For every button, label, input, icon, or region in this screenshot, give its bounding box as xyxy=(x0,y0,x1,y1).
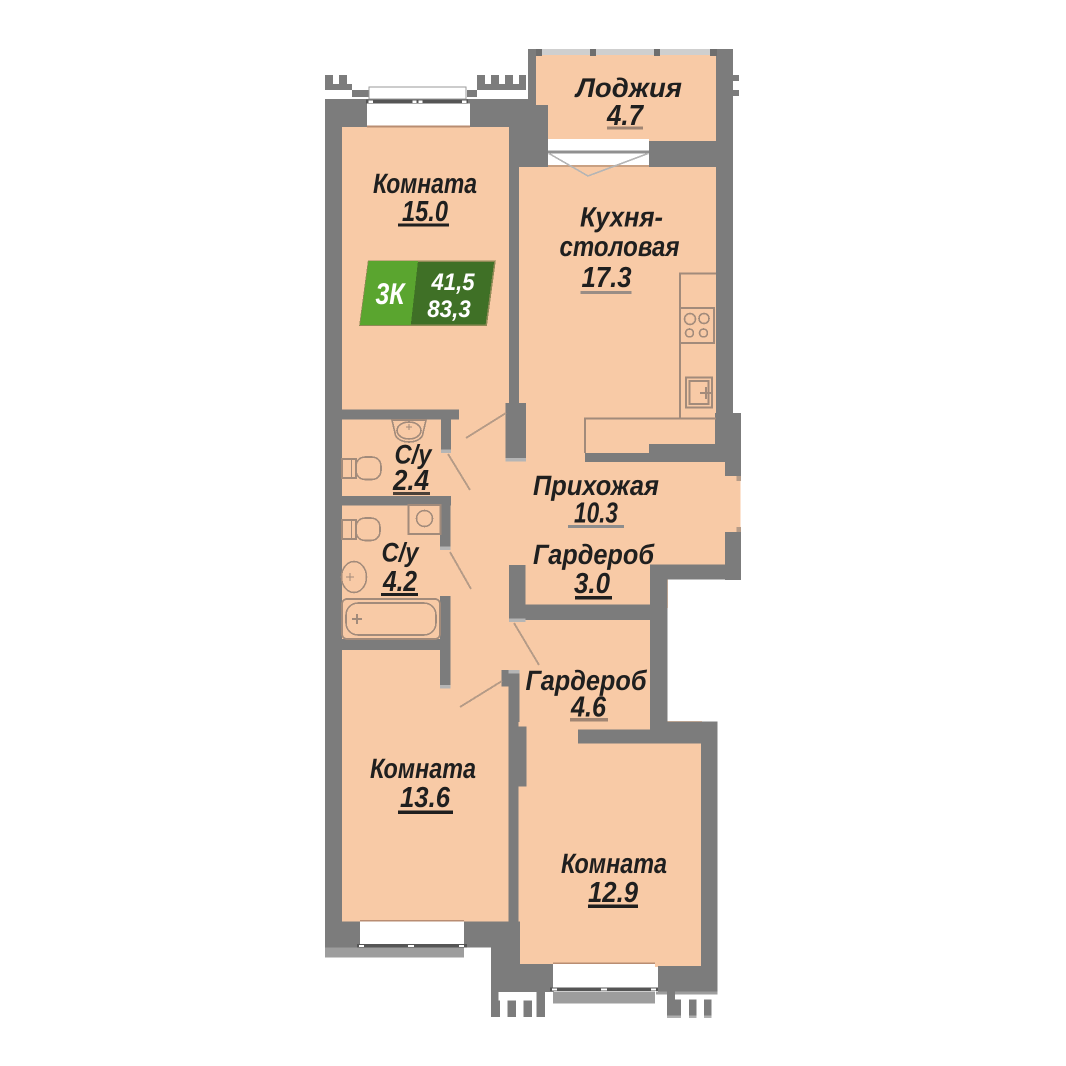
svg-text:Кухня-: Кухня- xyxy=(580,202,663,233)
svg-text:3К: 3К xyxy=(376,278,407,311)
svg-text:12.9: 12.9 xyxy=(588,877,638,909)
svg-text:Лоджия: Лоджия xyxy=(574,73,682,103)
svg-text:13.6: 13.6 xyxy=(400,782,451,814)
svg-text:столовая: столовая xyxy=(560,231,680,262)
svg-text:83,3: 83,3 xyxy=(427,296,471,323)
svg-text:Комната: Комната xyxy=(373,168,477,199)
svg-text:17.3: 17.3 xyxy=(582,262,632,294)
svg-text:15.0: 15.0 xyxy=(402,196,448,228)
svg-text:Комната: Комната xyxy=(370,753,476,784)
svg-text:3.0: 3.0 xyxy=(574,568,610,600)
svg-text:Прихожая: Прихожая xyxy=(533,470,659,501)
svg-text:С/у: С/у xyxy=(382,538,421,568)
svg-text:10.3: 10.3 xyxy=(574,498,618,530)
svg-text:Комната: Комната xyxy=(561,848,667,879)
svg-text:Гардероб: Гардероб xyxy=(533,539,655,570)
svg-text:41,5: 41,5 xyxy=(431,269,476,296)
